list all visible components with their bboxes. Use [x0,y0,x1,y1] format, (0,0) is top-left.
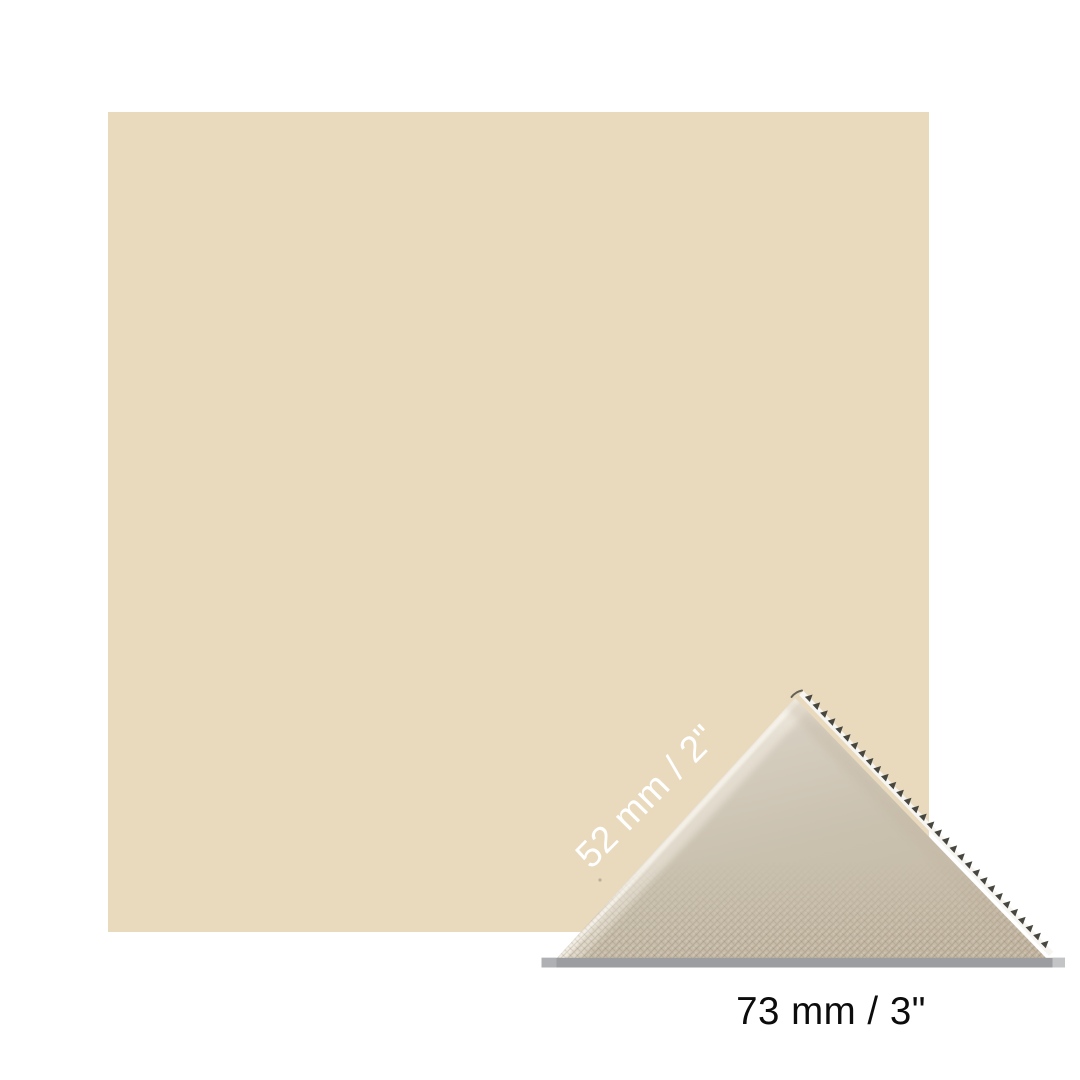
base-dimension-label: 73 mm / 3" [736,990,926,1033]
base-bar [542,958,1066,968]
dust-speck [598,878,601,881]
swatch-dimension-diagram: 52 mm / 2" 73 mm / 3" [0,0,1080,1080]
base-edge-bar [542,958,1066,968]
base-bar-left-cap [542,958,557,968]
product-image-canvas: 52 mm / 2" 73 mm / 3" [0,0,1080,1080]
base-bar-right-tip [1053,958,1066,968]
